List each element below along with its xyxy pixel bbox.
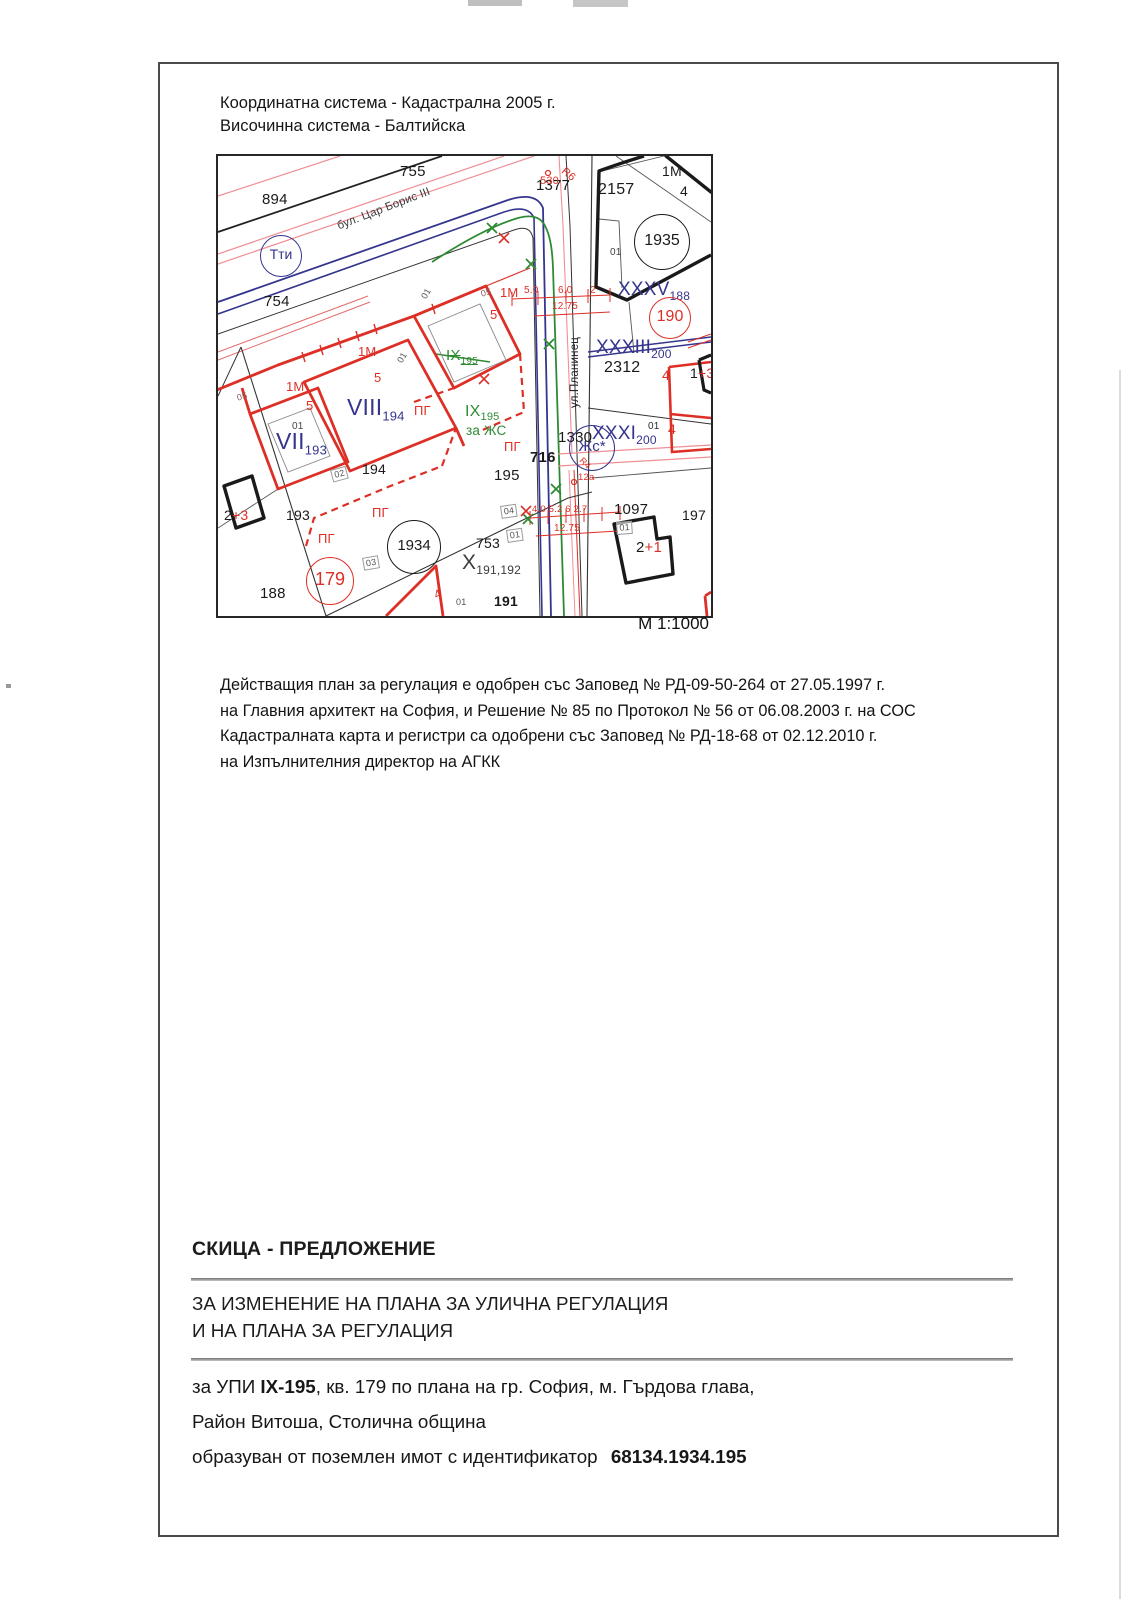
dim-6-0: 6.0: [558, 286, 573, 296]
label-subscript: 194: [382, 409, 404, 424]
label-part: 1: [690, 365, 698, 381]
parcel-894: 894: [262, 192, 288, 207]
divider-line: [191, 1358, 1013, 1361]
dim-chain: 4.0 5.2 6 2.7: [532, 505, 587, 515]
upi-number: IX-195: [260, 1376, 315, 1397]
sketch-title: СКИЦА - ПРЕДЛОЖЕНИЕ: [192, 1238, 436, 1261]
scanned-document-page: { "page": { "header": { "line1": "Коорди…: [0, 0, 1124, 1599]
point-12a: 12a: [578, 473, 594, 483]
label-5-red: 5: [306, 399, 313, 412]
kvartal-179: 179: [306, 557, 354, 605]
label-4-red: 4: [662, 368, 670, 382]
dim-12-75: 12.75: [554, 524, 580, 534]
label-01-boxed: 01: [616, 521, 633, 535]
label-part: 2: [636, 539, 645, 556]
label-part: +3: [698, 365, 713, 381]
detail-suffix: , кв. 179 по плана на гр. София, м. Гърд…: [316, 1376, 755, 1397]
label-part: 2: [224, 507, 232, 523]
height-system-line: Височинна система - Балтийска: [220, 115, 556, 138]
symbol-tti: Тти: [260, 235, 302, 277]
scan-artifact: [1119, 370, 1121, 1599]
point-1935: 1935: [634, 214, 690, 270]
label-1m-topright: 1М: [662, 164, 682, 178]
subtitle-line-1: ЗА ИЗМЕНЕНИЕ НА ПЛАНА ЗА УЛИЧНА РЕГУЛАЦИ…: [192, 1290, 668, 1317]
label-subscript: 195: [461, 356, 478, 367]
parcel-753: 753: [476, 536, 500, 550]
map-scale: М 1:1000: [532, 614, 709, 634]
parcel-754: 754: [264, 294, 290, 309]
label-01: 01: [456, 598, 466, 607]
paragraph-line: Действащия план за регулация е одобрен с…: [220, 673, 1020, 699]
point-530: 530: [540, 176, 559, 187]
symbol-zhs: Жс*: [569, 425, 615, 471]
scan-artifact: [468, 0, 522, 6]
parcel-194: 194: [362, 462, 386, 476]
parcel-2312: 2312: [604, 360, 640, 376]
parcel-197: 197: [682, 508, 706, 522]
label-part: +1: [645, 539, 663, 556]
label-subscript: 200: [651, 347, 672, 361]
divider-line: [191, 1278, 1013, 1281]
street-planinets: ул.Планинец: [570, 337, 582, 408]
label-5-red: 5: [374, 371, 381, 384]
label-01: 01: [610, 248, 622, 258]
label-subscript: 191,192: [476, 563, 521, 577]
label-subscript: 200: [636, 433, 657, 447]
label-1m-red: 1М: [286, 380, 304, 393]
sketch-subtitle: ЗА ИЗМЕНЕНИЕ НА ПЛАНА ЗА УЛИЧНА РЕГУЛАЦИ…: [192, 1290, 668, 1344]
coordinate-system-header: Координатна система - Кадастрална 2005 г…: [220, 92, 556, 138]
scan-artifact: [6, 684, 11, 688]
building-2-1: 2+1: [636, 540, 662, 555]
upi-xxxiii-200: XXXIII200: [596, 338, 672, 357]
label-pg: ПГ: [318, 532, 335, 545]
upi-vii-193: VII193: [276, 430, 327, 453]
detail-prefix: за УПИ: [192, 1376, 260, 1397]
paragraph-line: на Изпълнителния директор на АГКК: [220, 750, 1020, 776]
building-2-3: 2+3: [224, 508, 248, 522]
label-01-boxed: 01: [506, 528, 524, 543]
label-pg: ПГ: [504, 440, 521, 453]
cadastral-map: 755894754137721571М401231213307161951941…: [216, 154, 713, 618]
label-4-red: 4: [668, 422, 676, 436]
building-1-3: 1+3: [690, 366, 713, 380]
dim-5-0: 5.0: [524, 286, 539, 296]
label-subscript: 195: [481, 411, 500, 423]
label-5-red: 5: [490, 308, 497, 321]
coordinate-system-line: Координатна система - Кадастрална 2005 г…: [220, 92, 556, 115]
parcel-1097: 1097: [614, 502, 648, 517]
upi-detail-line: за УПИ IX-195, кв. 179 по плана на гр. С…: [192, 1376, 755, 1398]
label-subscript: 193: [305, 443, 327, 458]
parcel-2157: 2157: [598, 182, 634, 198]
dim-2: 2: [590, 286, 596, 296]
parcel-193: 193: [286, 508, 310, 522]
parcel-195: 195: [494, 468, 520, 483]
point-1934: 1934: [387, 520, 441, 574]
paragraph-line: Кадастралната карта и регистри са одобре…: [220, 724, 1020, 750]
identifier-line: образуван от поземлен имот с идентификат…: [192, 1446, 747, 1468]
page-frame: Координатна система - Кадастрална 2005 г…: [158, 62, 1059, 1537]
parcel-x-191-192: X191,192: [462, 552, 521, 573]
parcel-188: 188: [260, 586, 286, 601]
approval-paragraph: Действащия план за регулация е одобрен с…: [220, 673, 1020, 775]
label-4-topright: 4: [680, 184, 688, 198]
upi-ix-195-old: IX195: [446, 348, 478, 363]
upi-ix-195-new: IX195: [465, 404, 499, 420]
paragraph-line: на Главния архитект на София, и Решение …: [220, 699, 1020, 725]
label-za-zhs: за ЖС: [466, 424, 507, 438]
label-pg: ПГ: [414, 404, 431, 417]
kvartal-190: 190: [649, 297, 691, 339]
district-line: Район Витоша, Столична община: [192, 1411, 486, 1433]
label-04-boxed: 04: [500, 504, 518, 519]
label-1m-red: 1М: [500, 286, 518, 299]
identifier-prefix: образуван от поземлен имот с идентификат…: [192, 1446, 603, 1467]
parcel-755: 755: [400, 164, 426, 179]
dim-12-75: 12.75: [552, 302, 578, 312]
upi-viii-194: VIII194: [347, 396, 405, 419]
identifier-number: 68134.1934.195: [611, 1446, 747, 1467]
label-part: +3: [232, 507, 248, 523]
point-716: 716: [530, 450, 556, 465]
parcel-191: 191: [494, 594, 518, 608]
label-pg: ПГ: [372, 506, 389, 519]
subtitle-line-2: И НА ПЛАНА ЗА РЕГУЛАЦИЯ: [192, 1317, 668, 1344]
upi-xxxv-188: XXXV188: [618, 280, 690, 299]
label-1m-red: 1М: [358, 345, 376, 358]
scan-artifact: [573, 0, 628, 7]
